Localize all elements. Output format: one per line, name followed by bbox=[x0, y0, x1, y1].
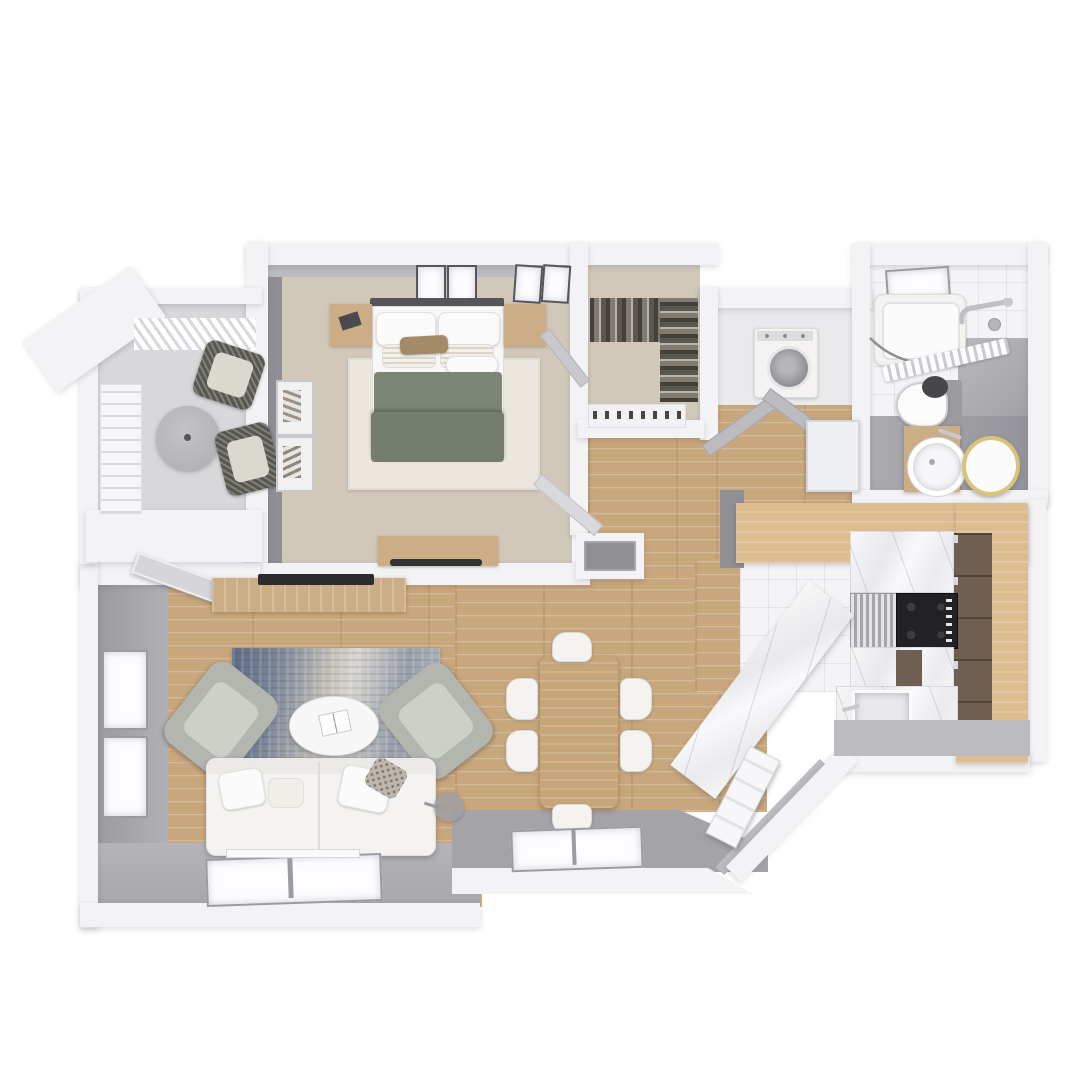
balcony-floor bbox=[90, 298, 262, 556]
wall-top-laundry bbox=[700, 288, 872, 308]
shower-curtain-rod bbox=[868, 330, 978, 380]
bedroom-left-wall-face bbox=[266, 263, 282, 565]
room-balcony bbox=[0, 0, 1080, 1080]
wall-balcony-left bbox=[80, 288, 98, 564]
bedroom-wall-art-print bbox=[283, 446, 301, 478]
wall-vanity-bottom bbox=[852, 490, 1048, 506]
bathroom-window bbox=[885, 266, 951, 302]
dining-chair bbox=[620, 730, 652, 772]
dining-chair bbox=[506, 730, 538, 772]
room-dining bbox=[0, 0, 1080, 1080]
bed-headboard bbox=[370, 298, 504, 308]
bed-duvet bbox=[374, 372, 502, 416]
kitchen-entry-wood-floor bbox=[695, 558, 770, 693]
kitchen-tile-floor bbox=[740, 556, 962, 692]
closet-carpet bbox=[588, 265, 700, 422]
sink-faucet bbox=[938, 428, 962, 440]
balcony-chair-cushion bbox=[205, 351, 255, 400]
wall-living-left bbox=[80, 563, 98, 928]
bedroom-skylight-window bbox=[513, 264, 544, 304]
bed-base bbox=[372, 306, 504, 462]
bed-pillow-striped bbox=[440, 344, 494, 368]
bed-pillow-striped bbox=[382, 344, 436, 368]
washer-dryer bbox=[754, 328, 818, 398]
coffee-table-book bbox=[318, 709, 352, 737]
washer-drum bbox=[767, 346, 811, 390]
entry-wall-inner-face bbox=[716, 759, 829, 875]
coffee-table bbox=[289, 696, 379, 756]
bedroom-top-wall-face bbox=[266, 263, 572, 277]
sofa-seat-split bbox=[318, 762, 320, 850]
nightstand bbox=[330, 304, 372, 346]
bed-lumbar-pillow bbox=[400, 335, 449, 355]
washer-controls bbox=[757, 331, 813, 341]
hall-niche-cabinet bbox=[584, 541, 636, 571]
wall-living-bottom bbox=[80, 903, 480, 927]
bed-pillow bbox=[376, 312, 436, 346]
living-side-window bbox=[102, 650, 148, 730]
hallway-wood-floor bbox=[588, 438, 718, 580]
balcony-door-open bbox=[131, 552, 231, 606]
armchair bbox=[158, 655, 284, 784]
balcony-chair-cushion bbox=[225, 434, 270, 483]
living-room-wood-floor bbox=[164, 583, 482, 907]
cabinet-handles bbox=[952, 533, 958, 745]
dining-table bbox=[540, 656, 618, 808]
bedroom-wall-art-print bbox=[283, 390, 301, 422]
tv bbox=[258, 574, 374, 585]
closet-hanging-clothes bbox=[590, 298, 692, 342]
bedroom-skylight-window bbox=[416, 265, 446, 305]
room-laundry bbox=[0, 0, 1080, 1080]
bedroom-wall-art bbox=[276, 380, 314, 436]
window-shade-bar bbox=[226, 849, 360, 858]
room-bedroom bbox=[0, 0, 1080, 1080]
bathtub bbox=[874, 294, 966, 366]
toilet-bowl bbox=[896, 382, 948, 428]
walls bbox=[0, 0, 1080, 1080]
wall-bedroom-bottom bbox=[246, 563, 590, 585]
bed-pillow-small bbox=[446, 356, 498, 374]
kitchen-faucet bbox=[842, 704, 860, 713]
wall-bedroom-left bbox=[246, 243, 268, 587]
kitchen-sink bbox=[852, 690, 912, 736]
closet-shoe-shelf bbox=[588, 404, 686, 428]
laundry-floor bbox=[718, 308, 852, 408]
kitchen-tall-cabinets bbox=[950, 533, 992, 745]
wall-bathroom-left bbox=[852, 243, 870, 505]
kitchen-counter-marble-top bbox=[850, 531, 954, 593]
dining-wood-floor bbox=[455, 580, 767, 812]
bedroom-carpet bbox=[268, 277, 572, 565]
dining-chair bbox=[620, 678, 652, 720]
floors bbox=[0, 0, 1080, 1080]
wall-top-main bbox=[248, 243, 718, 265]
toilet-tank bbox=[938, 380, 962, 426]
sofa-pillow bbox=[268, 778, 304, 808]
wall-right-bathroom bbox=[1028, 243, 1048, 505]
bed-pillow bbox=[438, 312, 500, 346]
kitchen-counter-edge bbox=[834, 720, 1030, 756]
living-bottom-window bbox=[205, 853, 383, 907]
bathroom-door-glass bbox=[806, 420, 860, 492]
cooktop bbox=[896, 593, 958, 649]
dining-chair bbox=[552, 632, 592, 662]
cooktop-controls bbox=[946, 598, 952, 642]
living-bottom-wall-face bbox=[96, 843, 480, 907]
balcony-slat-strip bbox=[134, 318, 256, 350]
kitchen-cabinet-small bbox=[896, 650, 922, 688]
living-rug bbox=[232, 648, 440, 766]
room-living bbox=[0, 0, 1080, 1080]
bedroom-rug bbox=[348, 358, 540, 490]
wall-laundry-left bbox=[700, 288, 718, 440]
dining-window bbox=[510, 826, 643, 873]
bedroom-skylight-window bbox=[447, 265, 477, 305]
kitchen-counter-marble-mid bbox=[850, 647, 954, 691]
armchair-cushion bbox=[180, 678, 262, 762]
wall-dining-bottom-outer bbox=[452, 868, 772, 894]
dining-chair bbox=[506, 678, 538, 720]
wall-kitchen-bottom bbox=[838, 752, 1030, 772]
living-side-window bbox=[102, 736, 148, 818]
vanity-cabinet bbox=[904, 426, 960, 492]
dining-window-mullion bbox=[571, 829, 576, 865]
wall-top-bathroom bbox=[858, 243, 1046, 265]
sofa-pillow bbox=[336, 763, 394, 814]
armchair-cushion bbox=[395, 679, 477, 762]
closet-hanging-clothes-side bbox=[660, 298, 698, 402]
sofa-pillow bbox=[217, 766, 267, 811]
wall-entry-angled bbox=[726, 746, 859, 882]
bathroom-right-wall-face bbox=[958, 338, 1032, 490]
balcony-planter bbox=[22, 266, 166, 392]
wall-balcony-top bbox=[80, 288, 262, 304]
bedroom-door-panel bbox=[540, 328, 590, 387]
wall-closet-bottom bbox=[578, 420, 704, 438]
wall-kitchen-right bbox=[1026, 500, 1046, 762]
breakfast-bar-top bbox=[736, 503, 1028, 563]
hallway-wood-floor-2 bbox=[716, 405, 858, 580]
nightstand bbox=[504, 304, 546, 346]
balcony-ledge bbox=[86, 510, 262, 562]
floor-lamp bbox=[434, 792, 464, 822]
balcony-chair bbox=[213, 420, 283, 498]
bedroom-skylight-window bbox=[541, 264, 572, 304]
living-left-wall-face bbox=[96, 583, 168, 905]
sink-drain bbox=[929, 459, 935, 465]
shower-head bbox=[988, 318, 1001, 331]
hallway bbox=[0, 0, 1080, 1080]
oven bbox=[850, 593, 898, 649]
sofa-base bbox=[206, 758, 436, 856]
room-bathroom bbox=[0, 0, 1080, 1080]
vessel-sink bbox=[908, 438, 966, 496]
living-bottom-window-mullion bbox=[287, 858, 293, 898]
round-gold-mirror bbox=[958, 432, 1024, 499]
floor-lamp-arm bbox=[424, 802, 440, 810]
tv-console bbox=[212, 578, 406, 612]
bedroom-wall-art bbox=[276, 436, 314, 492]
laundry-bifold-door bbox=[702, 397, 777, 457]
laundry-bifold-door bbox=[762, 388, 840, 450]
wall-bedroom-right bbox=[570, 243, 588, 535]
balcony-table bbox=[156, 406, 220, 470]
balcony-railing bbox=[100, 384, 142, 514]
bathtub-inner bbox=[882, 302, 960, 360]
vanity-alcove-wall bbox=[866, 416, 1028, 492]
shower-curtain bbox=[882, 338, 1010, 382]
bed-duvet-fold bbox=[371, 412, 504, 462]
balcony-table-center-dot bbox=[184, 434, 191, 441]
nightstand-decor bbox=[338, 311, 361, 330]
room-walk-in-closet bbox=[0, 0, 1080, 1080]
bedroom-dresser bbox=[378, 536, 498, 566]
balcony-chair bbox=[191, 338, 268, 412]
toilet-lid-open bbox=[922, 376, 948, 398]
front-door-open bbox=[706, 746, 781, 849]
kitchen-left-wall-face bbox=[720, 490, 744, 568]
interior-wall-faces bbox=[0, 0, 1080, 1080]
wall-living-top bbox=[80, 563, 260, 585]
bedroom-door-open bbox=[533, 474, 603, 536]
entry bbox=[0, 0, 1080, 1080]
dining-chair bbox=[552, 804, 592, 834]
hall-niche-frame bbox=[576, 533, 644, 579]
breakfast-bar-right bbox=[956, 503, 1028, 763]
armchair bbox=[373, 657, 500, 786]
dining-bottom-wall-face bbox=[452, 810, 768, 872]
sofa-pillow-patterned bbox=[362, 755, 409, 801]
kitchen-counter-sink-run bbox=[836, 686, 958, 736]
grab-bar bbox=[958, 298, 1018, 334]
marble-peninsula bbox=[670, 581, 853, 798]
bathroom-tile-floor bbox=[866, 263, 1028, 423]
sofa-back bbox=[206, 758, 434, 774]
floor-plan-canvas bbox=[0, 0, 1080, 1080]
room-kitchen bbox=[0, 0, 1080, 1080]
bedroom-tv-soundbar bbox=[390, 559, 482, 566]
